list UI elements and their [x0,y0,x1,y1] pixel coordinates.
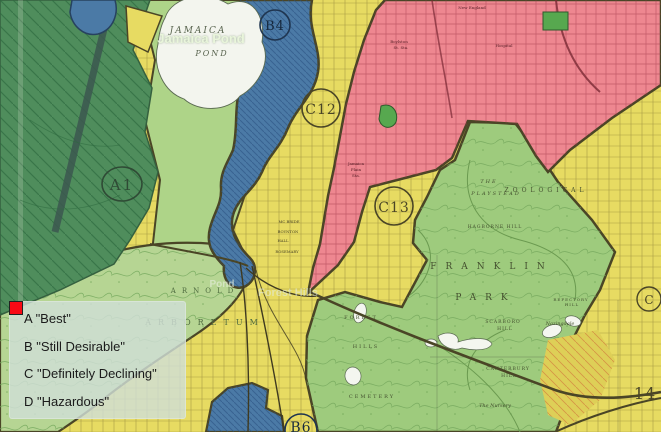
label-hall: HALL [277,238,289,243]
map-viewer: JAMAICA POND FRANKLIN PARK ARNOLD ARBORE… [0,0,661,432]
label-sta-3: Sta. [352,173,360,178]
label-nazingdale: Nazingdale [545,321,575,327]
label-pond: POND [194,49,228,58]
label-canterbury: CANTERBURY [486,366,530,372]
label-refectory-hill: HILL [565,302,579,307]
label-canterbury-hill: HILL [501,373,517,379]
small-park-1 [543,12,568,30]
label-hospital: Hospital [495,43,513,48]
label-scarboro: SCARBORO [485,319,520,325]
label-scarboro-hill: HILL [497,326,513,332]
legend-item-b: B "Still Desirable" [24,339,186,354]
svg-text:C12: C12 [305,102,337,118]
label-forest: FOREST [344,315,378,321]
label-st-sta: St. Sta. [394,45,409,50]
legend-label-a: A "Best" [24,311,71,326]
overlay-pond: Pond [210,279,235,290]
legend-label-b: B "Still Desirable" [24,339,125,354]
label-rosemary: ROSEMARY [275,249,299,254]
label-sta-2: Plain [351,167,362,172]
legend-panel: A "Best" B "Still Desirable" C "Definite… [9,301,186,419]
grade-d-swatch [9,301,23,315]
label-hagborne-hill: HAGBORNE HILL [468,224,523,230]
label-sta-1: Jamaica [347,161,365,166]
legend-item-c: C "Definitely Declining" [24,366,186,381]
scan-stripe [18,0,23,320]
label-nursery: The Nursery [479,403,511,409]
label-hills: HILLS [353,344,379,350]
label-new-england: New England [458,5,486,10]
legend-label-c: C "Definitely Declining" [24,366,157,381]
svg-text:B6: B6 [290,420,311,432]
legend-label-d: D "Hazardous" [24,394,109,409]
svg-text:B4: B4 [265,19,285,34]
label-cemetery: CEMETERY [349,394,395,400]
svg-text:A1: A1 [109,176,134,194]
overlay-forest-hills: Forest Hills [258,287,318,299]
label-the: THE [480,179,497,185]
label-mc-bride: MC BRIDE [279,219,300,224]
legend-item-d: D "Hazardous" [24,394,186,409]
overlay-jamaica-pond: Jamaica Pond [157,31,244,46]
label-playstead: PLAYSTEAD [470,191,520,197]
small-park-2 [379,105,397,127]
label-boylston: Boylston [390,39,408,44]
label-park: PARK [455,293,516,303]
legend-item-a: A "Best" [24,311,186,326]
label-boynton: BOYNTON [278,229,299,234]
zone-label-14: 14 [634,384,656,403]
svg-text:C13: C13 [378,200,410,216]
label-franklin: FRANKLIN [430,262,554,272]
svg-text:C: C [644,293,653,307]
